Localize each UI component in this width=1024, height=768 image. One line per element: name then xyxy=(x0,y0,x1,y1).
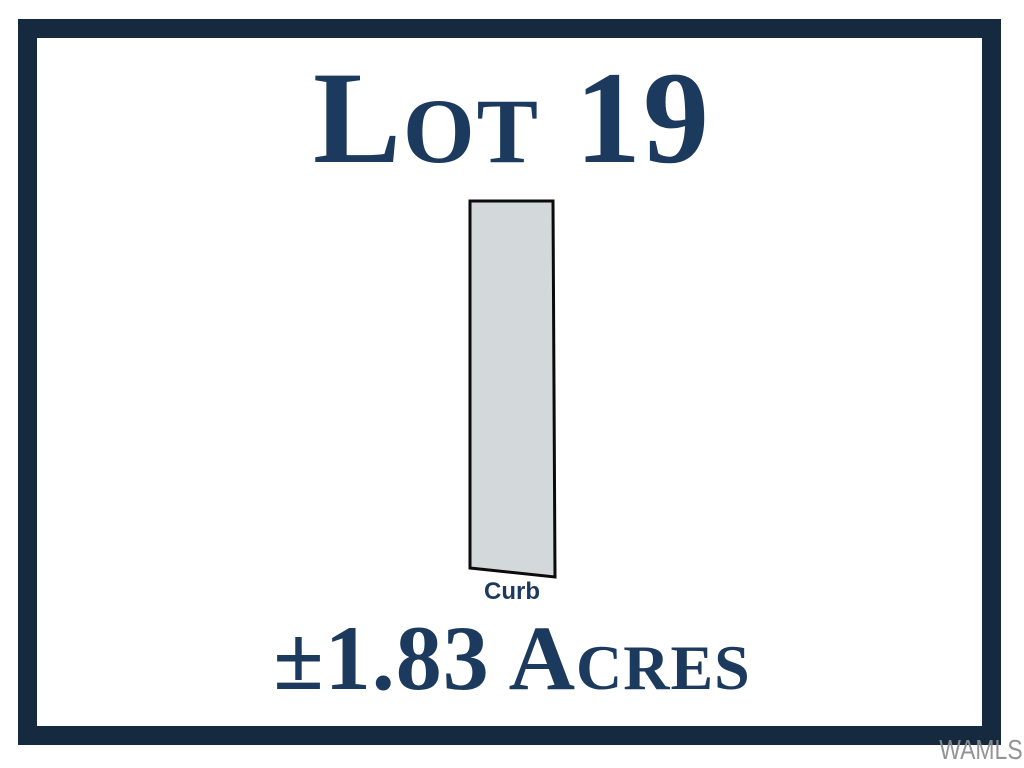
curb-label: Curb xyxy=(0,580,1024,604)
parcel-shape xyxy=(470,201,555,577)
mls-watermark: WAMLS xyxy=(940,736,1023,764)
acreage-label: ±1.83 Acres xyxy=(0,612,1024,704)
lot-listing-graphic: Lot 19 Curb ±1.83 Acres WAMLS xyxy=(0,0,1024,768)
